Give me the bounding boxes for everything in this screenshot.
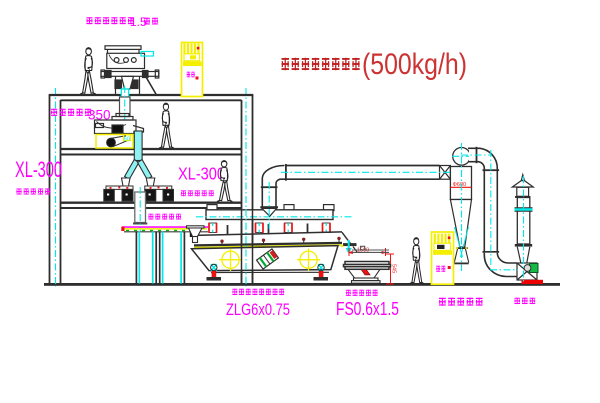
svg-text:XL-300: XL-300 bbox=[15, 157, 62, 182]
svg-text:XL-300: XL-300 bbox=[178, 164, 225, 184]
svg-text:FS0.6x1.5: FS0.6x1.5 bbox=[336, 299, 399, 319]
svg-text:50: 50 bbox=[124, 136, 130, 142]
svg-text:Φ600: Φ600 bbox=[453, 182, 467, 188]
svg-text:(500kg/h): (500kg/h) bbox=[362, 48, 467, 81]
svg-text:545: 545 bbox=[391, 264, 397, 273]
svg-text:ZLG6x0.75: ZLG6x0.75 bbox=[226, 300, 290, 319]
